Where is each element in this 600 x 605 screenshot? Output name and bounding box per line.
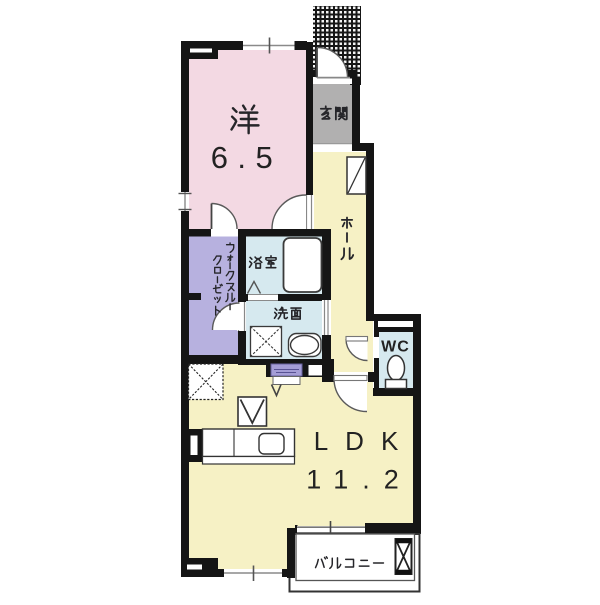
svg-text:6.5: 6.5 [211,140,283,175]
svg-text:WC: WC [381,339,410,356]
svg-text:LDK: LDK [314,426,416,456]
svg-text:11.2: 11.2 [306,465,413,495]
